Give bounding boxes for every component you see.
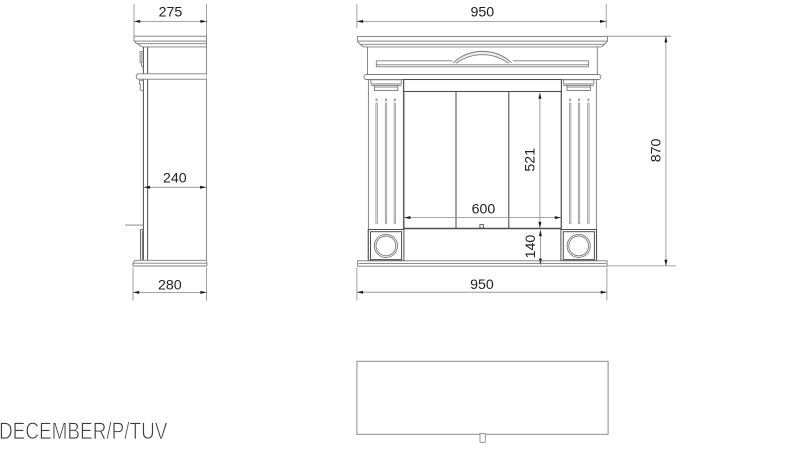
svg-text:275: 275 — [159, 5, 183, 21]
svg-text:600: 600 — [472, 201, 496, 217]
svg-text:950: 950 — [470, 277, 494, 293]
svg-text:870: 870 — [649, 138, 665, 162]
svg-text:DECEMBER/P/TUV: DECEMBER/P/TUV — [0, 416, 168, 444]
svg-text:280: 280 — [158, 277, 182, 293]
svg-text:140: 140 — [523, 235, 539, 259]
svg-text:521: 521 — [523, 148, 539, 172]
svg-text:240: 240 — [163, 171, 187, 187]
svg-text:950: 950 — [470, 5, 494, 21]
